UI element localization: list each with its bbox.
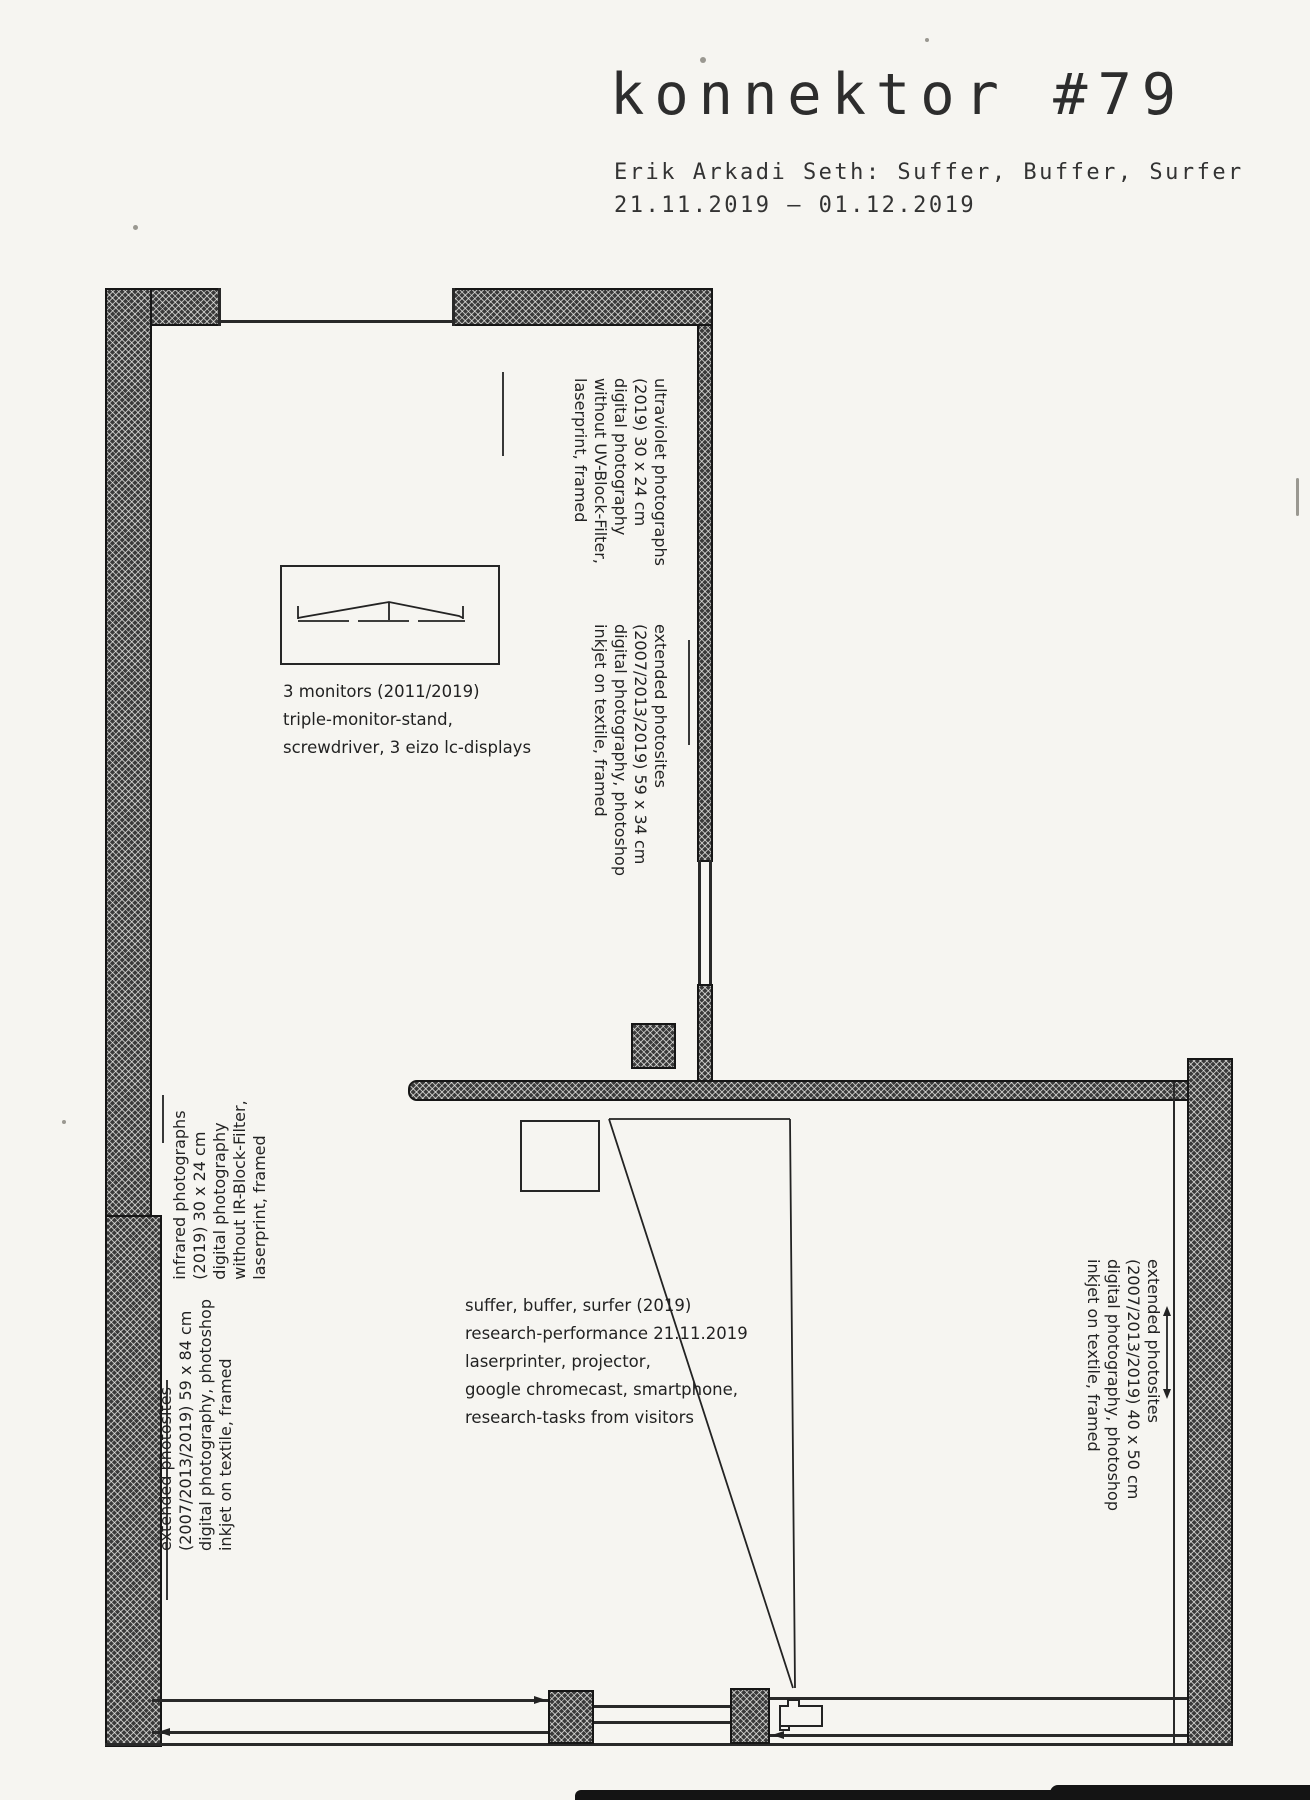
- scan-speck: [133, 225, 138, 230]
- wall-upper-room-right-a: [697, 324, 713, 862]
- bottom-line-left-b: [152, 1731, 548, 1734]
- door-line-outer: [698, 860, 701, 986]
- label-extended-left: extended photosites (2007/2013/2019) 59 …: [156, 1299, 236, 1551]
- bottom-line-right-a: [769, 1697, 1187, 1700]
- wall-top-right: [453, 288, 713, 326]
- caption-line: triple-monitor-stand,: [283, 706, 531, 734]
- label-line: digital photography, photoshop: [196, 1299, 216, 1551]
- label-line: digital photography: [210, 1100, 230, 1279]
- caption-line: suffer, buffer, surfer (2019): [465, 1292, 748, 1320]
- door-line-inner: [709, 860, 712, 986]
- label-line: (2007/2013/2019) 59 x 34 cm: [630, 624, 650, 876]
- label-line: digital photography: [610, 378, 630, 566]
- caption-line: screwdriver, 3 eizo lc-displays: [283, 734, 531, 762]
- scan-speck: [700, 57, 706, 63]
- monitor-area-outline: [280, 565, 500, 665]
- bottom-line-right-b: [769, 1734, 1187, 1737]
- label-line: inkjet on textile, framed: [216, 1299, 236, 1551]
- page-title: konnektor #79: [610, 62, 1186, 128]
- label-line: digital photography, photoshop: [1103, 1259, 1123, 1511]
- label-line: extended photosites: [1143, 1259, 1163, 1511]
- projector-icon: [780, 1700, 822, 1730]
- scan-edge-artifact-2: [1050, 1785, 1310, 1800]
- exhibition-subtitle: Erik Arkadi Seth: Suffer, Buffer, Surfer: [614, 160, 1244, 185]
- wall-right-inner-line: [1173, 1082, 1175, 1744]
- top-opening-cap-right: [452, 288, 455, 326]
- label-line: ultraviolet photographs: [650, 378, 670, 566]
- pillar-center: [631, 1023, 676, 1069]
- label-line: extended photosites: [156, 1299, 176, 1551]
- scan-speck: [62, 1120, 66, 1124]
- label-line: inkjet on textile, framed: [1083, 1259, 1103, 1511]
- label-line: (2019) 30 x 24 cm: [190, 1100, 210, 1279]
- top-opening-line: [220, 320, 453, 323]
- wall-upper-room-right-b: [697, 984, 713, 1086]
- label-extended-upper-right: extended photosites (2007/2013/2019) 59 …: [590, 624, 670, 876]
- label-line: (2007/2013/2019) 59 x 84 cm: [176, 1299, 196, 1551]
- scan-speck: [1296, 478, 1299, 516]
- label-ultraviolet: ultraviolet photographs (2019) 30 x 24 c…: [570, 378, 670, 566]
- label-line: laserprint, framed: [570, 378, 590, 566]
- label-line: laserprint, framed: [250, 1100, 270, 1279]
- caption-line: research-performance 21.11.2019: [465, 1320, 748, 1348]
- exhibition-dates: 21.11.2019 – 01.12.2019: [614, 193, 976, 218]
- pillar-bottom-1: [548, 1690, 594, 1744]
- bottom-line-mid-a: [593, 1705, 730, 1708]
- label-line: digital photography, photoshop: [610, 624, 630, 876]
- bottom-outer-edge: [105, 1743, 1233, 1746]
- pillar-bottom-2: [730, 1688, 770, 1744]
- bottom-line-left-a: [152, 1699, 548, 1702]
- arrow-extended-right-bottom: [1163, 1389, 1171, 1399]
- label-line: (2019) 30 x 24 cm: [630, 378, 650, 566]
- wall-left-upper: [105, 288, 152, 1218]
- label-infrared: infrared photographs (2019) 30 x 24 cm d…: [170, 1100, 270, 1279]
- label-extended-lower-right: extended photosites (2007/2013/2019) 40 …: [1083, 1259, 1163, 1511]
- caption-line: laserprinter, projector,: [465, 1348, 748, 1376]
- wall-partition: [408, 1080, 1233, 1101]
- scan-speck: [925, 38, 929, 42]
- caption-performance: suffer, buffer, surfer (2019) research-p…: [465, 1292, 748, 1432]
- label-line: (2007/2013/2019) 40 x 50 cm: [1123, 1259, 1143, 1511]
- label-line: without UV-Block-Filter,: [590, 378, 610, 566]
- label-line: extended photosites: [650, 624, 670, 876]
- caption-line: 3 monitors (2011/2019): [283, 678, 531, 706]
- pedestal-outline: [520, 1120, 600, 1192]
- caption-monitors: 3 monitors (2011/2019) triple-monitor-st…: [283, 678, 531, 762]
- wall-right: [1187, 1058, 1233, 1746]
- label-line: without IR-Block-Filter,: [230, 1100, 250, 1279]
- label-line: inkjet on textile, framed: [590, 624, 610, 876]
- top-opening-cap-left: [218, 288, 221, 326]
- bottom-line-mid-b: [593, 1721, 730, 1724]
- wall-left-lower: [105, 1215, 162, 1747]
- label-line: infrared photographs: [170, 1100, 190, 1279]
- caption-line: research-tasks from visitors: [465, 1404, 748, 1432]
- caption-line: google chromecast, smartphone,: [465, 1376, 748, 1404]
- arrow-extended-right-top: [1163, 1306, 1171, 1316]
- floor-plan-sheet: konnektor #79 Erik Arkadi Seth: Suffer, …: [0, 0, 1310, 1800]
